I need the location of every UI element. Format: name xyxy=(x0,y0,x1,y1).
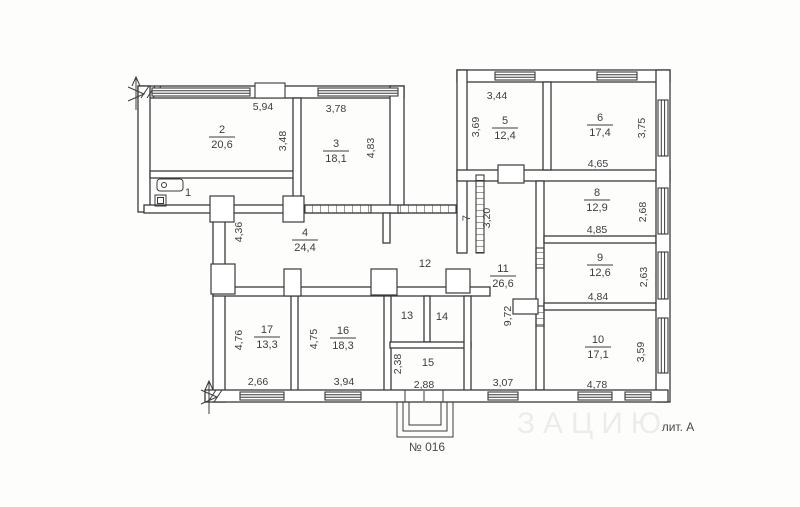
window-right-4 xyxy=(658,318,668,373)
room-7-number: 7 xyxy=(461,215,473,221)
dim-corridor11-width: 3,07 xyxy=(493,377,514,389)
window-top-3 xyxy=(495,72,535,80)
dim-room3-width: 3,78 xyxy=(326,103,347,115)
dim-room4-height: 4,36 xyxy=(233,222,245,243)
dim-room6-height: 3,75 xyxy=(636,118,648,139)
dim-room15-height: 2,38 xyxy=(392,354,404,375)
dim-room16-width: 3,94 xyxy=(334,376,355,388)
room-3-area: 18,1 xyxy=(325,153,346,165)
dim-room3-height: 4,83 xyxy=(365,138,377,159)
dim-room10-height: 3,59 xyxy=(635,342,647,363)
dim-room16-height: 4,75 xyxy=(308,329,320,350)
annotations: ЗАЦИЮ № 016 лит. А xyxy=(409,407,694,454)
room-14-number: 14 xyxy=(436,311,448,323)
window-right-2 xyxy=(658,188,668,234)
room-8-number: 8 xyxy=(594,187,600,199)
window-top-2 xyxy=(318,88,398,96)
bathtub-drain-icon xyxy=(162,183,167,188)
dim-room17-height: 4,76 xyxy=(233,330,245,351)
room-6-area: 17,4 xyxy=(589,127,610,139)
room-15-number: 15 xyxy=(422,357,434,369)
dim-room10-width: 4,78 xyxy=(587,379,608,391)
room-3-number: 3 xyxy=(333,138,339,150)
room-10-area: 17,1 xyxy=(587,349,608,361)
window-bottom-3 xyxy=(488,392,518,400)
room-4-number: 4 xyxy=(302,227,308,239)
dim-room9-height: 2,63 xyxy=(638,267,650,288)
sink-basin-icon xyxy=(158,198,164,204)
dim-room15-width: 2,88 xyxy=(414,379,435,391)
room-10-number: 10 xyxy=(592,334,604,346)
window-right-1 xyxy=(658,100,668,156)
room-17-area: 13,3 xyxy=(256,339,277,351)
room-1-number: 1 xyxy=(185,187,191,199)
room-6-number: 6 xyxy=(597,112,603,124)
room-4-area: 24,4 xyxy=(294,242,315,254)
watermark: ЗАЦИЮ xyxy=(517,407,669,440)
dim-room2-height: 3,48 xyxy=(277,131,289,152)
dim-room7-length: 3,20 xyxy=(481,208,493,229)
floor-plan-drawing: 1 2 20,6 3 18,1 4 24,4 5 12,4 6 17,4 7 8… xyxy=(0,0,800,507)
window-bottom-1 xyxy=(240,392,284,400)
room-16-number: 16 xyxy=(337,325,349,337)
liter-label: лит. А xyxy=(662,420,695,434)
scanned-floor-plan-page: 1 2 20,6 3 18,1 4 24,4 5 12,4 6 17,4 7 8… xyxy=(0,0,800,507)
dim-room5-height: 3,69 xyxy=(470,117,482,138)
room-5-area: 12,4 xyxy=(494,130,515,142)
window-top-1 xyxy=(152,88,250,96)
bathroom-fixtures xyxy=(155,179,183,206)
room-9-area: 12,6 xyxy=(589,267,610,279)
dim-room2-width: 5,94 xyxy=(253,101,274,113)
room-5-number: 5 xyxy=(502,115,508,127)
bathtub-icon xyxy=(157,179,183,191)
room-8-area: 12,9 xyxy=(586,202,607,214)
room-11-number: 11 xyxy=(497,263,508,275)
window-top-4 xyxy=(597,72,637,80)
dim-room6-width: 4,65 xyxy=(588,158,609,170)
dim-corridor11-length: 9,72 xyxy=(502,306,514,327)
dim-room8-height: 2,68 xyxy=(637,202,649,223)
room-17-number: 17 xyxy=(261,324,273,336)
window-right-3 xyxy=(658,252,668,299)
room-16-area: 18,3 xyxy=(332,340,353,352)
room-9-number: 9 xyxy=(597,252,603,264)
room-13-number: 13 xyxy=(401,310,413,322)
dim-room17-width: 2,66 xyxy=(248,376,269,388)
window-bottom-2 xyxy=(325,392,361,400)
dim-room8-width: 4,85 xyxy=(587,224,608,236)
window-bottom-4 xyxy=(578,392,612,400)
room-12-number: 12 xyxy=(419,258,431,270)
room-2-area: 20,6 xyxy=(211,139,232,151)
wall-pier xyxy=(255,83,285,98)
dim-room5-width: 3,44 xyxy=(487,90,508,102)
room-11-area: 26,6 xyxy=(492,278,513,290)
plan-number-label: № 016 xyxy=(409,440,446,454)
room-2-number: 2 xyxy=(219,124,225,136)
window-bottom-5 xyxy=(625,392,651,400)
dim-room9-width: 4,84 xyxy=(588,291,609,303)
